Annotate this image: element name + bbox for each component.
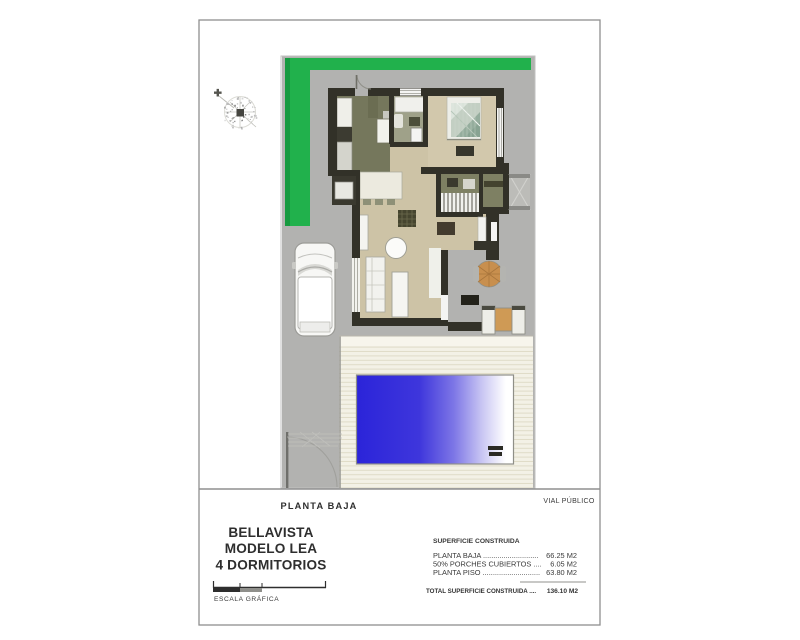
svg-text:PLANTA BAJA: PLANTA BAJA [281, 501, 358, 511]
svg-text:VIAL PÚBLICO: VIAL PÚBLICO [543, 496, 594, 505]
svg-text:MODELO LEA: MODELO LEA [225, 541, 318, 556]
svg-text:4 DORMITORIOS: 4 DORMITORIOS [215, 558, 326, 573]
svg-text:63.80 M2: 63.80 M2 [546, 568, 577, 577]
svg-text:PLANTA PISO ..................: PLANTA PISO ............................ [433, 568, 540, 577]
svg-text:136.10 M2: 136.10 M2 [547, 588, 578, 595]
svg-text:SUPERFICIE CONSTRUIDA: SUPERFICIE CONSTRUIDA [433, 538, 520, 545]
svg-text:TOTAL SUPERFICIE CONSTRUIDA ..: TOTAL SUPERFICIE CONSTRUIDA .... [426, 588, 536, 595]
svg-text:ESCALA GRÁFICA: ESCALA GRÁFICA [214, 594, 279, 603]
svg-text:BELLAVISTA: BELLAVISTA [228, 525, 313, 540]
